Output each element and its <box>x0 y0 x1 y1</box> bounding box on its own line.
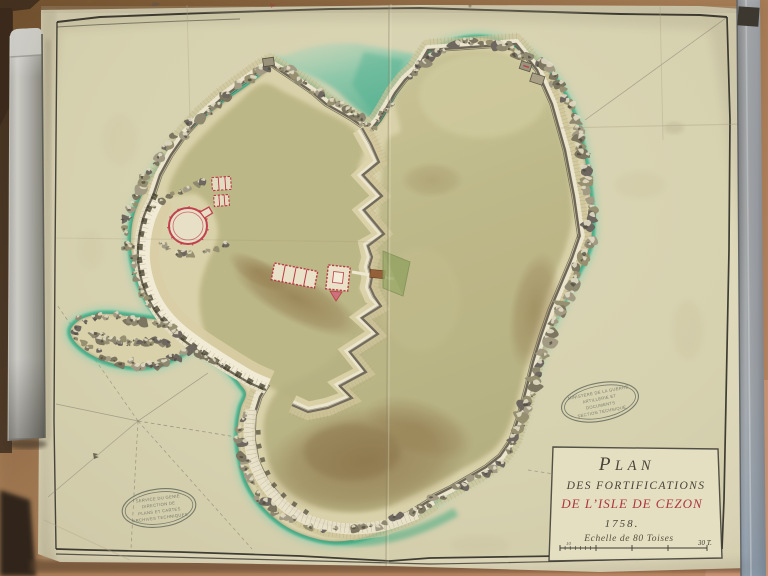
svg-text:PLAN: PLAN <box>598 454 655 475</box>
svg-text:Echelle de 80 Toises: Echelle de 80 Toises <box>583 534 673 544</box>
svg-text:DE L’ISLE DE CEZON: DE L’ISLE DE CEZON <box>560 496 703 511</box>
svg-text:10: 10 <box>566 542 572 547</box>
svg-text:1758.: 1758. <box>605 518 640 530</box>
svg-text:30 T.: 30 T. <box>697 539 712 547</box>
svg-text:DES FORTIFICATIONS: DES FORTIFICATIONS <box>566 480 706 492</box>
